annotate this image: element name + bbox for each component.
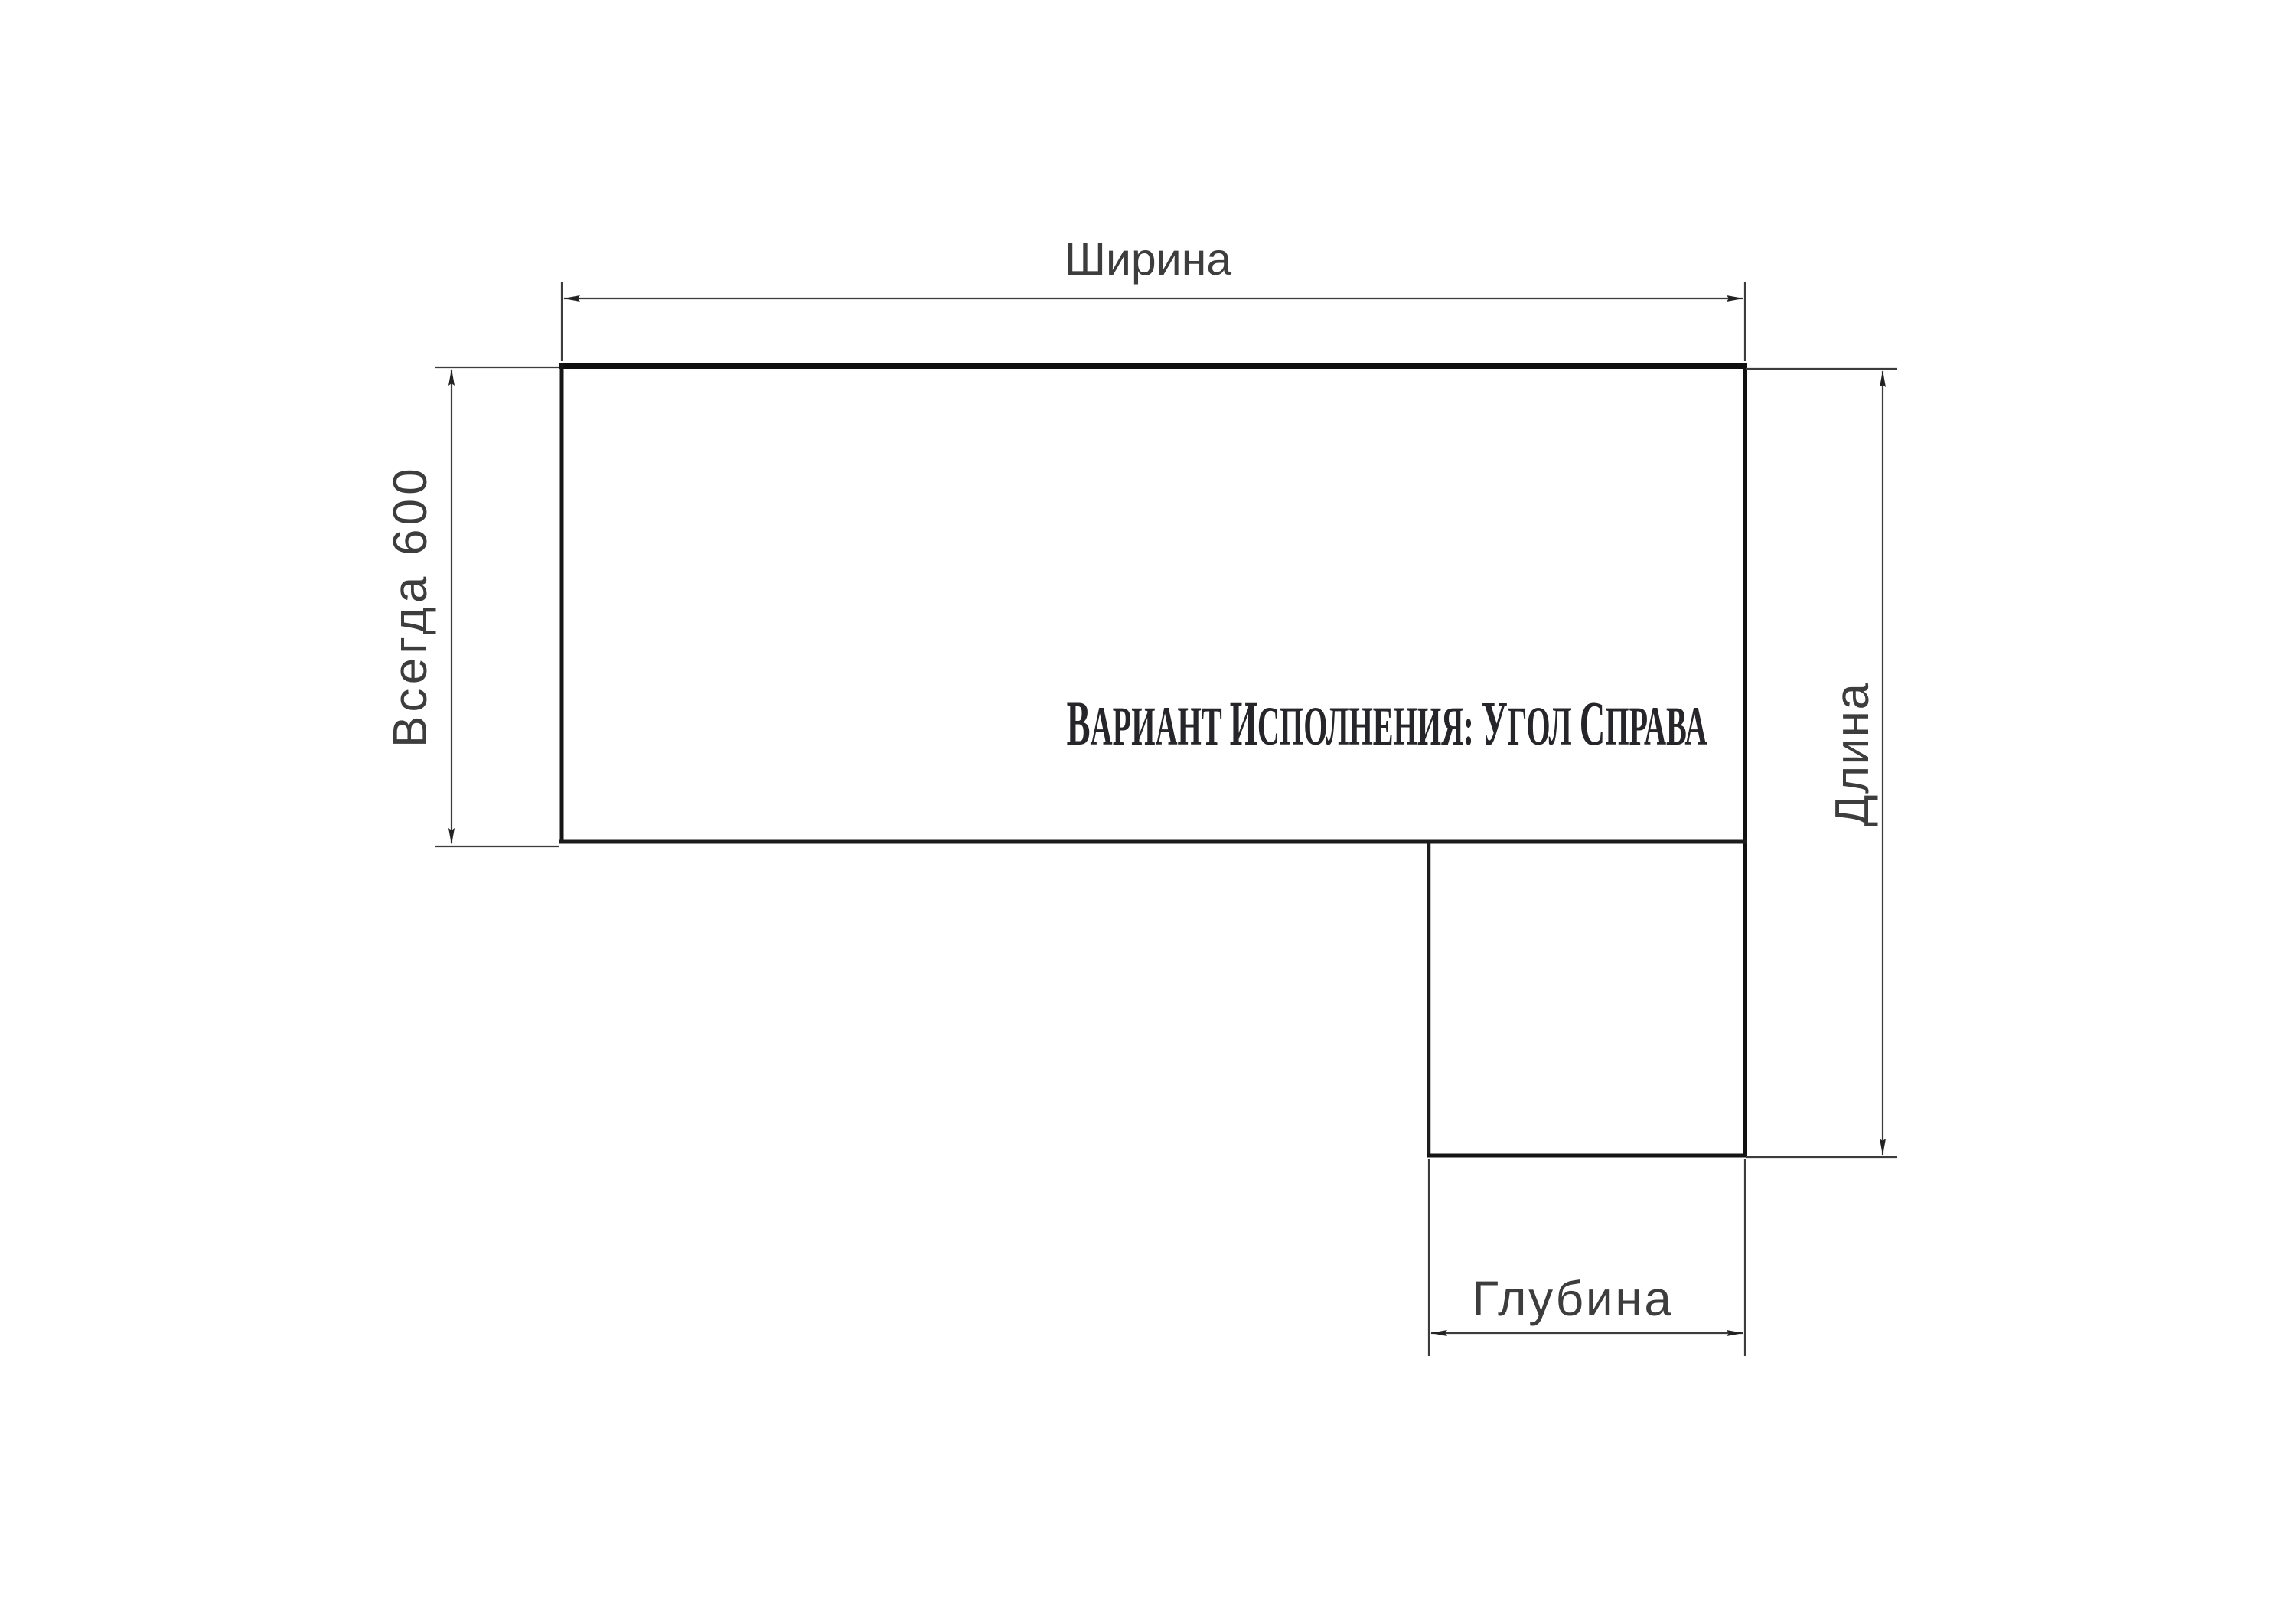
svg-text:Глубина: Глубина xyxy=(1472,1271,1673,1326)
svg-text:Ширина: Ширина xyxy=(1065,234,1231,285)
svg-text:ВАРИАНТ ИСПОЛНЕНИЯ: УГОЛ СПРАВ: ВАРИАНТ ИСПОЛНЕНИЯ: УГОЛ СПРАВА xyxy=(1067,688,1707,759)
svg-text:Длина: Длина xyxy=(1826,682,1879,826)
svg-text:Всегда 600: Всегда 600 xyxy=(384,464,437,748)
